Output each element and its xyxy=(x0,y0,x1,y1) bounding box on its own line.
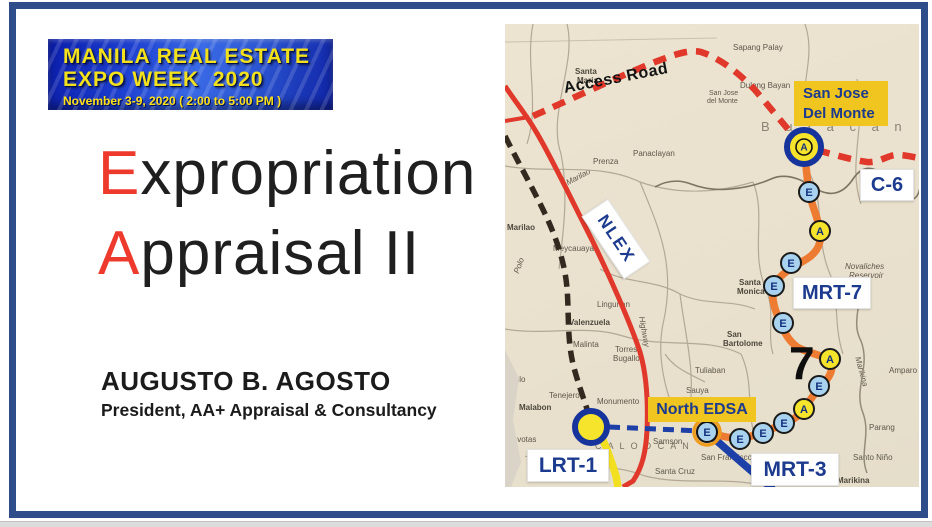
north-edsa-letter: E xyxy=(703,427,710,439)
event-banner: MANILA REAL ESTATE EXPO WEEK 2020 Novemb… xyxy=(48,39,333,110)
station-e-letter: E xyxy=(815,381,822,393)
mrt7-label: MRT-7 xyxy=(793,277,871,309)
author-role: President, AA+ Appraisal & Consultancy xyxy=(101,400,437,421)
c6-label: C-6 xyxy=(860,169,914,201)
window-bottom-strip xyxy=(0,521,932,527)
map-gridline xyxy=(505,38,717,42)
station-e-letter: E xyxy=(779,318,786,330)
san-jose-del-monte-label: San Jose Del Monte xyxy=(794,81,888,126)
slide: MANILA REAL ESTATE EXPO WEEK 2020 Novemb… xyxy=(0,0,932,521)
transit-map: SantaMariaSapang PalayDulong BayanB u l … xyxy=(505,24,919,487)
san-jose-del-monte-letter: A xyxy=(800,143,807,154)
mrt7-numeral: 7 xyxy=(789,340,815,386)
monumento-marker xyxy=(575,411,607,443)
station-e-letter: E xyxy=(770,281,777,293)
sjdm-label-line2: Del Monte xyxy=(803,104,888,124)
banner-date-line: November 3-9, 2020 ( 2:00 to 5:00 PM ) xyxy=(63,93,333,110)
station-e-letter: E xyxy=(787,258,794,270)
north-edsa-label: North EDSA xyxy=(648,397,756,422)
station-e-letter: E xyxy=(780,418,787,430)
title-line2: Appraisal II xyxy=(98,214,476,294)
lrt1-label: LRT-1 xyxy=(527,449,609,482)
author-name: AUGUSTO B. AGOSTO xyxy=(101,366,437,397)
nlex-branch xyxy=(505,117,529,121)
banner-title-line1: MANILA REAL ESTATE xyxy=(63,45,333,68)
title-initial-1: E xyxy=(98,139,140,208)
station-a-letter: A xyxy=(826,354,834,366)
title-rest-1: xpropriation xyxy=(140,139,476,208)
station-e-letter: E xyxy=(736,434,743,446)
edsa-connector-line xyxy=(609,427,702,431)
c6-line xyxy=(817,150,919,162)
slide-title: Expropriation Appraisal II xyxy=(98,134,476,294)
title-initial-2: A xyxy=(98,219,140,288)
station-e-letter: E xyxy=(759,428,766,440)
mrt3-label: MRT-3 xyxy=(751,453,839,486)
station-e-letter: E xyxy=(805,187,812,199)
station-a-letter: A xyxy=(800,404,808,416)
banner-title-line2: EXPO WEEK 2020 xyxy=(63,68,333,91)
station-a-letter: A xyxy=(816,226,824,238)
title-rest-2: ppraisal II xyxy=(140,219,420,288)
sjdm-label-line1: San Jose xyxy=(803,84,888,104)
water-area xyxy=(505,350,521,487)
author-block: AUGUSTO B. AGOSTO President, AA+ Apprais… xyxy=(101,366,437,421)
title-line1: Expropriation xyxy=(98,134,476,214)
